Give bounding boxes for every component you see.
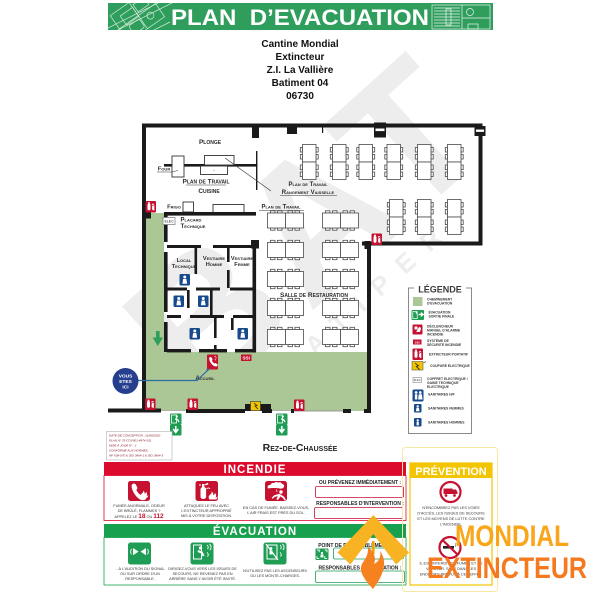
svg-text:Placard: Placard: [181, 218, 202, 224]
svg-text:D'ACCÈS, LES ISSUES DE SECOURS: D'ACCÈS, LES ISSUES DE SECOURS: [417, 511, 485, 516]
svg-text:ICI: ICI: [122, 385, 129, 391]
svg-text:MISE À JOUR N° : 1: MISE À JOUR N° : 1: [109, 444, 137, 448]
svg-text:N'ENCOMBREZ PAS LES VOIES: N'ENCOMBREZ PAS LES VOIES: [422, 505, 480, 510]
svg-text:Cuisine: Cuisine: [198, 188, 220, 195]
svg-text:CONFORME AUX NORMES:: CONFORME AUX NORMES:: [109, 449, 149, 453]
svg-text:Rangement Vaisselle: Rangement Vaisselle: [282, 190, 335, 196]
svg-text:DATE DE CONCEPTION : 21/08/202: DATE DE CONCEPTION : 21/08/2020: [109, 434, 161, 438]
svg-text:SANITAIRES HOMMES: SANITAIRES HOMMES: [428, 421, 465, 425]
svg-text:Homme: Homme: [206, 262, 223, 268]
svg-text:PRÉVENTION: PRÉVENTION: [415, 465, 487, 478]
svg-text:PLAN N° 75-COV501-4974-101: PLAN N° 75-COV501-4974-101: [109, 439, 152, 443]
svg-text:ETES: ETES: [119, 379, 132, 385]
svg-text:Plan de Travail: Plan de Travail: [261, 205, 301, 211]
svg-text:ÉVACUATION: ÉVACUATION: [213, 525, 297, 538]
svg-text:Extincteur: Extincteur: [276, 52, 325, 63]
svg-text:Rez-de-Chaussée: Rez-de-Chaussée: [263, 442, 338, 454]
svg-text:MONDIAL: MONDIAL: [455, 520, 569, 553]
svg-text:D'EVACUATION: D'EVACUATION: [427, 302, 453, 306]
svg-text:Z.I. La Vallière: Z.I. La Vallière: [267, 65, 334, 76]
svg-text:Four: Four: [158, 167, 171, 173]
svg-text:SORTIE FINALE: SORTIE FINALE: [429, 315, 456, 319]
svg-text:Plan de Travail: Plan de Travail: [288, 182, 328, 188]
svg-text:EXTINCTEUR PORTATIF: EXTINCTEUR PORTATIF: [429, 353, 468, 357]
svg-text:RESPONSABLE.: RESPONSABLE.: [125, 576, 154, 581]
svg-text:Frigo: Frigo: [167, 205, 181, 211]
svg-text:ELECTRIQUE: ELECTRIQUE: [427, 385, 450, 389]
svg-text:ARRIÈRE SANS Y AVOIR ÉTÉ INVIT: ARRIÈRE SANS Y AVOIR ÉTÉ INVITÉ.: [169, 576, 236, 581]
svg-text:INCENDIE: INCENDIE: [427, 333, 444, 337]
svg-text:SANITAIRES H/F: SANITAIRES H/F: [428, 393, 455, 397]
svg-text:NF X08-070 & ISO 3864-1 & ISO: NF X08-070 & ISO 3864-1 & ISO 3864-3: [109, 454, 163, 458]
svg-text:PLAN D’EVACUATION: PLAN D’EVACUATION: [171, 5, 429, 30]
svg-text:SSI: SSI: [242, 356, 249, 361]
svg-text:SANITAIRES FEMMES: SANITAIRES FEMMES: [428, 407, 464, 411]
svg-text:OU PRÉVENEZ IMMÉDIATEMENT :: OU PRÉVENEZ IMMÉDIATEMENT :: [319, 478, 401, 486]
svg-text:Plonge: Plonge: [199, 139, 222, 146]
svg-text:SSI: SSI: [415, 340, 420, 344]
svg-text:COUPURE ELECTRIQUE: COUPURE ELECTRIQUE: [430, 364, 470, 368]
svg-text:Cantine Mondial: Cantine Mondial: [261, 39, 338, 50]
svg-text:Femme: Femme: [234, 262, 250, 268]
svg-text:INCENDIE: INCENDIE: [224, 464, 287, 476]
svg-text:Technique: Technique: [181, 224, 206, 230]
svg-text:RESPONSABLES D'INTERVENTION :: RESPONSABLES D'INTERVENTION :: [316, 501, 404, 507]
svg-text:Salle de Restauration: Salle de Restauration: [280, 292, 348, 299]
svg-text:LÉGENDE: LÉGENDE: [418, 285, 462, 295]
svg-text:L'AIR FRAIS EST PRÈS DU SOL.: L'AIR FRAIS EST PRÈS DU SOL.: [247, 510, 304, 515]
svg-text:Plan de Travail: Plan de Travail: [182, 179, 229, 186]
svg-text:OU LES MONTE-CHARGES.: OU LES MONTE-CHARGES.: [250, 573, 300, 578]
svg-text:VOUS: VOUS: [119, 374, 133, 380]
svg-text:ELEC: ELEC: [414, 378, 421, 382]
svg-text:EXTINCTEUR: EXTINCTEUR: [427, 552, 587, 585]
svg-text:RESPONSABLES D'ÉVACUATION :: RESPONSABLES D'ÉVACUATION :: [319, 564, 402, 572]
svg-text:ELEC: ELEC: [164, 220, 174, 224]
svg-text:Technique: Technique: [172, 264, 197, 270]
svg-text:MIS À VOTRE DISPOSITION.: MIS À VOTRE DISPOSITION.: [181, 513, 232, 518]
svg-text:06730: 06730: [286, 91, 314, 102]
svg-text:Batiment 04: Batiment 04: [272, 78, 329, 89]
svg-text:APPELEZ LE 18 OU 112: APPELEZ LE 18 OU 112: [114, 513, 164, 520]
svg-text:SÉCURITÉ INCENDIE: SÉCURITÉ INCENDIE: [427, 342, 462, 347]
